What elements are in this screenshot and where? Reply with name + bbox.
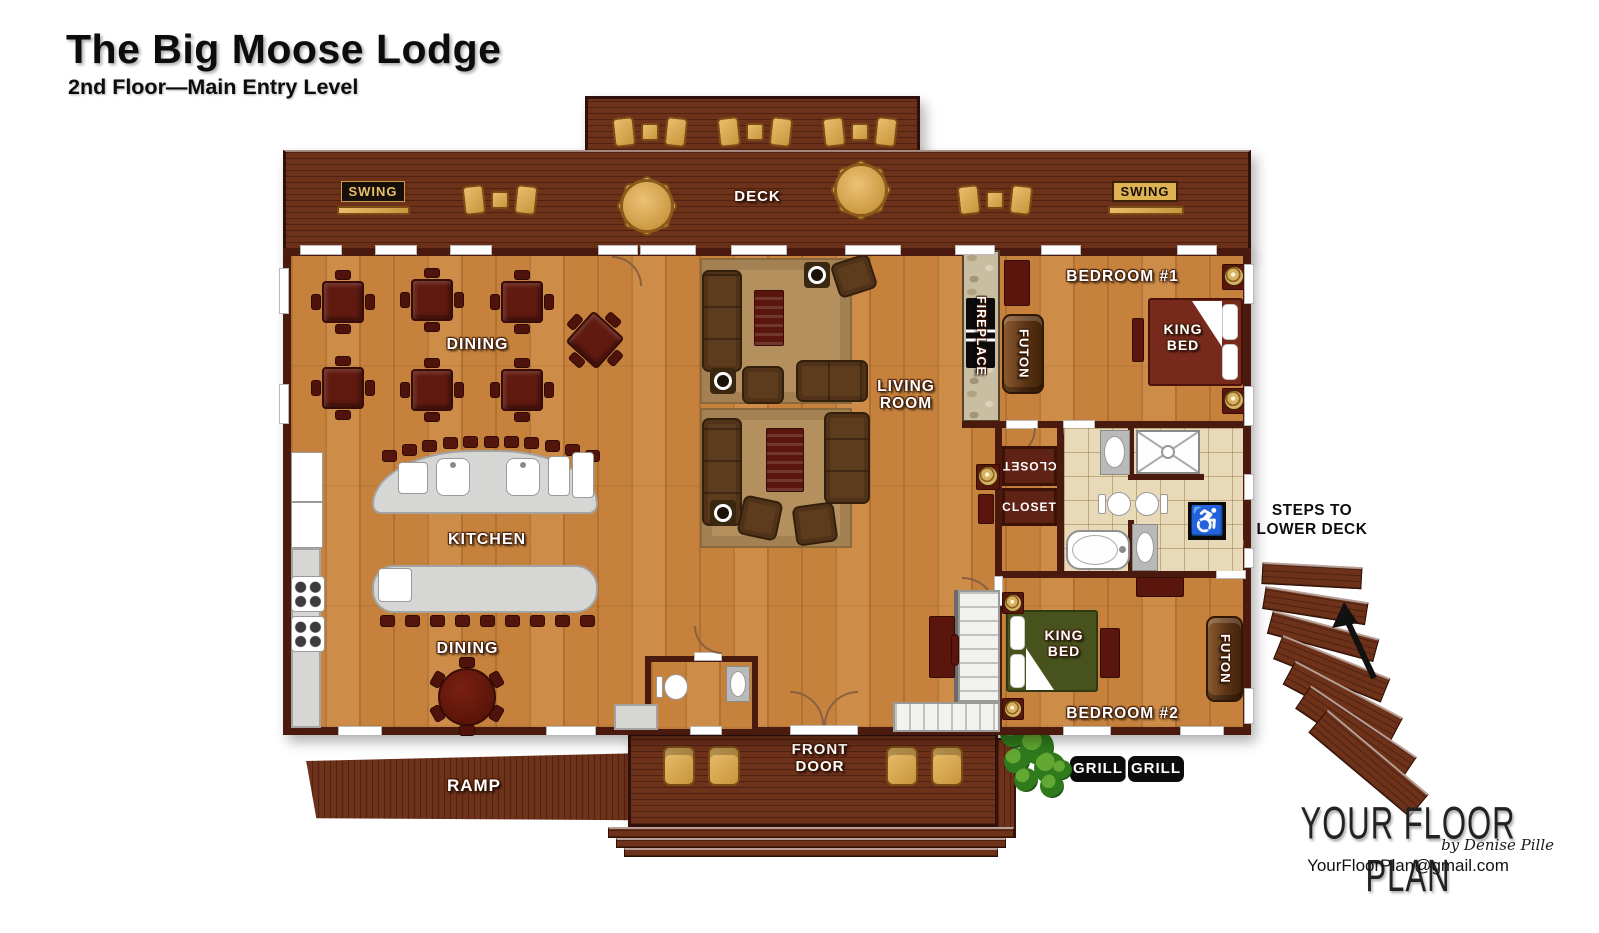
dining-chair: [514, 324, 530, 334]
window: [1244, 474, 1254, 500]
toilet-tank: [656, 676, 663, 698]
lamp: [808, 266, 826, 284]
toilet: [1134, 492, 1168, 516]
steps-to-lower-deck-label: STEPS TO LOWER DECK: [1256, 502, 1368, 539]
window: [1063, 726, 1111, 736]
deck-chair: [611, 116, 636, 148]
dining-table: [496, 276, 548, 328]
dining-table-top: [411, 369, 453, 411]
lamp: [1004, 594, 1022, 612]
dining-table-top: [322, 281, 364, 323]
deck-table-top: [620, 179, 674, 233]
bathroom-sink: [1136, 532, 1154, 563]
window: [450, 245, 492, 255]
door-threshold: [690, 726, 722, 735]
window: [279, 384, 289, 424]
window: [1180, 726, 1224, 736]
bar-stool: [402, 444, 417, 456]
bar-stool: [545, 440, 560, 452]
front-door-threshold: [790, 725, 858, 735]
bar-stool: [382, 450, 397, 462]
dining-chair: [335, 356, 351, 366]
lamp: [714, 504, 732, 522]
utility-box: [614, 704, 658, 730]
dining-table: [406, 274, 458, 326]
dining-chair: [311, 294, 321, 310]
refrigerator: [291, 452, 323, 502]
dining-chair: [459, 657, 475, 668]
window: [338, 726, 382, 736]
dining-chair: [400, 382, 410, 398]
armchair: [736, 494, 783, 541]
interior-wall: [962, 421, 1243, 428]
sofa: [824, 412, 870, 504]
deck-label: DECK: [715, 189, 800, 206]
brand-email: YourFloorPlan@gmail.com: [1258, 856, 1558, 876]
stairs-flight-bottom: [893, 702, 1000, 732]
dresser: [1004, 260, 1030, 306]
rocking-chair: [931, 746, 963, 786]
deck-round-table: [619, 178, 675, 234]
window: [1244, 688, 1254, 724]
armchair: [742, 366, 784, 404]
deck-side-table: [851, 123, 869, 141]
door-threshold: [1216, 570, 1246, 579]
dining-table: [496, 364, 548, 416]
dining-chair: [459, 725, 475, 736]
dining-table: [406, 364, 458, 416]
window: [1041, 245, 1081, 255]
bedroom2-label: BEDROOM #2: [1040, 705, 1205, 722]
dining-chair: [544, 382, 554, 398]
king-bed-bedroom2-label: KING BED: [1034, 628, 1094, 659]
closet-lower-label: CLOSET: [1002, 500, 1057, 514]
toilet: [1098, 492, 1132, 516]
bench: [1132, 318, 1144, 362]
ramp-label: RAMP: [438, 776, 510, 795]
rocking-chair: [708, 746, 740, 786]
toilet-tank: [1160, 494, 1168, 514]
futon-bedroom1-label: FUTON: [1002, 316, 1044, 392]
fireplace-label: FIREPLACE: [962, 260, 1000, 412]
living-room-label: LIVING ROOM: [862, 378, 950, 413]
dining-chair: [514, 270, 530, 280]
dining-chair: [424, 322, 440, 332]
window: [598, 245, 638, 255]
round-dining-table: [438, 668, 496, 726]
bathroom-sink: [1104, 436, 1125, 468]
deck-chair: [461, 184, 486, 216]
swing-left-sign: SWING: [341, 181, 405, 202]
dining-chair: [424, 358, 440, 368]
brand-byline: by Denise Pille: [1258, 836, 1554, 854]
bar-stool: [530, 615, 545, 627]
bar-stool: [405, 615, 420, 627]
closet-upper: CLOSET: [1002, 446, 1057, 486]
deck-chair: [768, 116, 793, 148]
rocking-chair: [886, 746, 918, 786]
dining-table-top: [322, 367, 364, 409]
bed-pillow: [1010, 654, 1025, 688]
steps-direction-arrow-icon: [1328, 600, 1388, 686]
coffee-table: [754, 290, 784, 346]
page-subtitle: 2nd Floor—Main Entry Level: [68, 75, 358, 100]
bar-stool: [480, 615, 495, 627]
floor-plan-canvas: SWING SWING DECK RAMP FRONT DOOR GRILL G…: [0, 0, 1599, 933]
porch-step: [616, 838, 1006, 848]
bathroom-sink: [730, 671, 746, 697]
toilet-bowl: [664, 674, 688, 700]
shower-glass: [1138, 432, 1198, 472]
window: [640, 245, 696, 255]
porch-step: [608, 827, 1014, 838]
grill-right-sign: GRILL: [1128, 756, 1184, 782]
sofa: [702, 270, 742, 372]
faucet: [450, 462, 456, 468]
king-bed-bedroom1-label: KING BED: [1150, 322, 1216, 353]
window: [375, 245, 417, 255]
bar-stool: [524, 437, 539, 449]
bar-stool: [443, 437, 458, 449]
window: [1244, 386, 1254, 426]
swing-right-bench: [1108, 206, 1184, 215]
deck-round-table: [833, 162, 889, 218]
futon-bedroom2-label: FUTON: [1206, 618, 1243, 700]
lamp: [1224, 266, 1244, 286]
window: [845, 245, 901, 255]
deck-chair: [956, 184, 981, 216]
deck-side-table: [491, 191, 509, 209]
dining-chair: [514, 412, 530, 422]
bar-stool: [422, 440, 437, 452]
porch-step: [624, 848, 998, 857]
deck-step: [1261, 562, 1362, 589]
bush: [1014, 768, 1038, 792]
lamp: [1224, 390, 1244, 410]
deck-chair: [1008, 184, 1033, 216]
dining-chair: [424, 268, 440, 278]
swing-right-sign: SWING: [1112, 181, 1178, 202]
faucet: [1119, 546, 1126, 553]
deck-side-table: [641, 123, 659, 141]
stove-cooktop: [291, 576, 325, 612]
window: [1177, 245, 1217, 255]
front-door-label: FRONT DOOR: [776, 742, 864, 776]
dining-upper-label: DINING: [430, 336, 525, 354]
bar-stool: [504, 436, 519, 448]
page-title: The Big Moose Lodge: [66, 26, 501, 73]
dining-chair: [365, 380, 375, 396]
bed-pillow: [1010, 616, 1025, 650]
armchair: [791, 501, 838, 546]
deck-chair: [663, 116, 688, 148]
toilet-tank: [1098, 494, 1106, 514]
kitchen-label: KITCHEN: [437, 531, 537, 549]
swing-left-bench: [337, 206, 410, 215]
lamp: [714, 372, 732, 390]
grill-left-sign: GRILL: [1070, 756, 1126, 782]
dining-chair: [335, 270, 351, 280]
interior-wall: [1057, 421, 1064, 571]
island-appliance: [378, 568, 412, 602]
deck-chair: [513, 184, 538, 216]
closet-lower: CLOSET: [1002, 488, 1057, 526]
lamp: [1004, 700, 1022, 718]
kitchen-appliance: [572, 452, 594, 498]
window: [955, 245, 995, 255]
dining-chair: [365, 294, 375, 310]
dining-table-top: [411, 279, 453, 321]
bedroom1-label: BEDROOM #1: [1040, 268, 1205, 285]
bar-stool: [484, 436, 499, 448]
dining-chair: [424, 412, 440, 422]
lamp: [978, 466, 998, 486]
faucet: [520, 462, 526, 468]
dining-table: [317, 362, 369, 414]
freezer: [291, 502, 323, 548]
kitchen-appliance: [548, 456, 570, 496]
toilet-bowl: [1107, 492, 1131, 516]
deck-chair: [716, 116, 741, 148]
dining-chair: [335, 410, 351, 420]
dresser: [1136, 577, 1184, 597]
bar-stool: [505, 615, 520, 627]
dining-chair: [335, 324, 351, 334]
bed-pillow: [1222, 304, 1238, 340]
deck-side-table: [986, 191, 1004, 209]
shower: [1136, 430, 1200, 474]
deck-side-table: [746, 123, 764, 141]
window: [731, 245, 787, 255]
accessible-sign: ♿: [1188, 502, 1226, 540]
closet-upper-label: CLOSET: [1002, 459, 1057, 473]
bathtub-basin: [1072, 535, 1118, 565]
window: [1244, 264, 1254, 304]
bar-stool: [380, 615, 395, 627]
bed-pillow: [1222, 344, 1238, 380]
accessible-icon: ♿: [1190, 505, 1225, 536]
bench: [978, 494, 994, 524]
dining-table: [317, 276, 369, 328]
bar-stool: [455, 615, 470, 627]
deck-chair: [821, 116, 846, 148]
window: [279, 268, 289, 314]
bar-stool: [430, 615, 445, 627]
interior-wall: [995, 571, 1243, 578]
desk: [1100, 628, 1120, 678]
bar-stool: [580, 615, 595, 627]
dining-chair: [454, 382, 464, 398]
dining-lower-label: DINING: [420, 640, 515, 658]
dining-chair: [544, 294, 554, 310]
rocking-chair: [663, 746, 695, 786]
window: [300, 245, 342, 255]
sofa: [796, 360, 868, 402]
dining-chair: [311, 380, 321, 396]
desk-chair: [951, 634, 959, 666]
bar-stool: [463, 436, 478, 448]
stairs-flight-down: [958, 590, 1000, 702]
deck-table-top: [834, 163, 888, 217]
toilet: [656, 674, 688, 700]
dining-table-top: [501, 281, 543, 323]
dining-chair: [490, 294, 500, 310]
dining-table-top: [501, 369, 543, 411]
dining-chair: [490, 382, 500, 398]
coffee-table: [766, 428, 804, 492]
bar-stool: [555, 615, 570, 627]
deck-chair: [873, 116, 898, 148]
window: [546, 726, 596, 736]
bush: [1052, 760, 1072, 780]
dining-chair: [400, 292, 410, 308]
dining-chair: [454, 292, 464, 308]
stove-cooktop: [291, 616, 325, 652]
dining-chair: [514, 358, 530, 368]
dishwasher: [398, 462, 428, 494]
window: [1244, 548, 1254, 568]
toilet-bowl: [1135, 492, 1159, 516]
